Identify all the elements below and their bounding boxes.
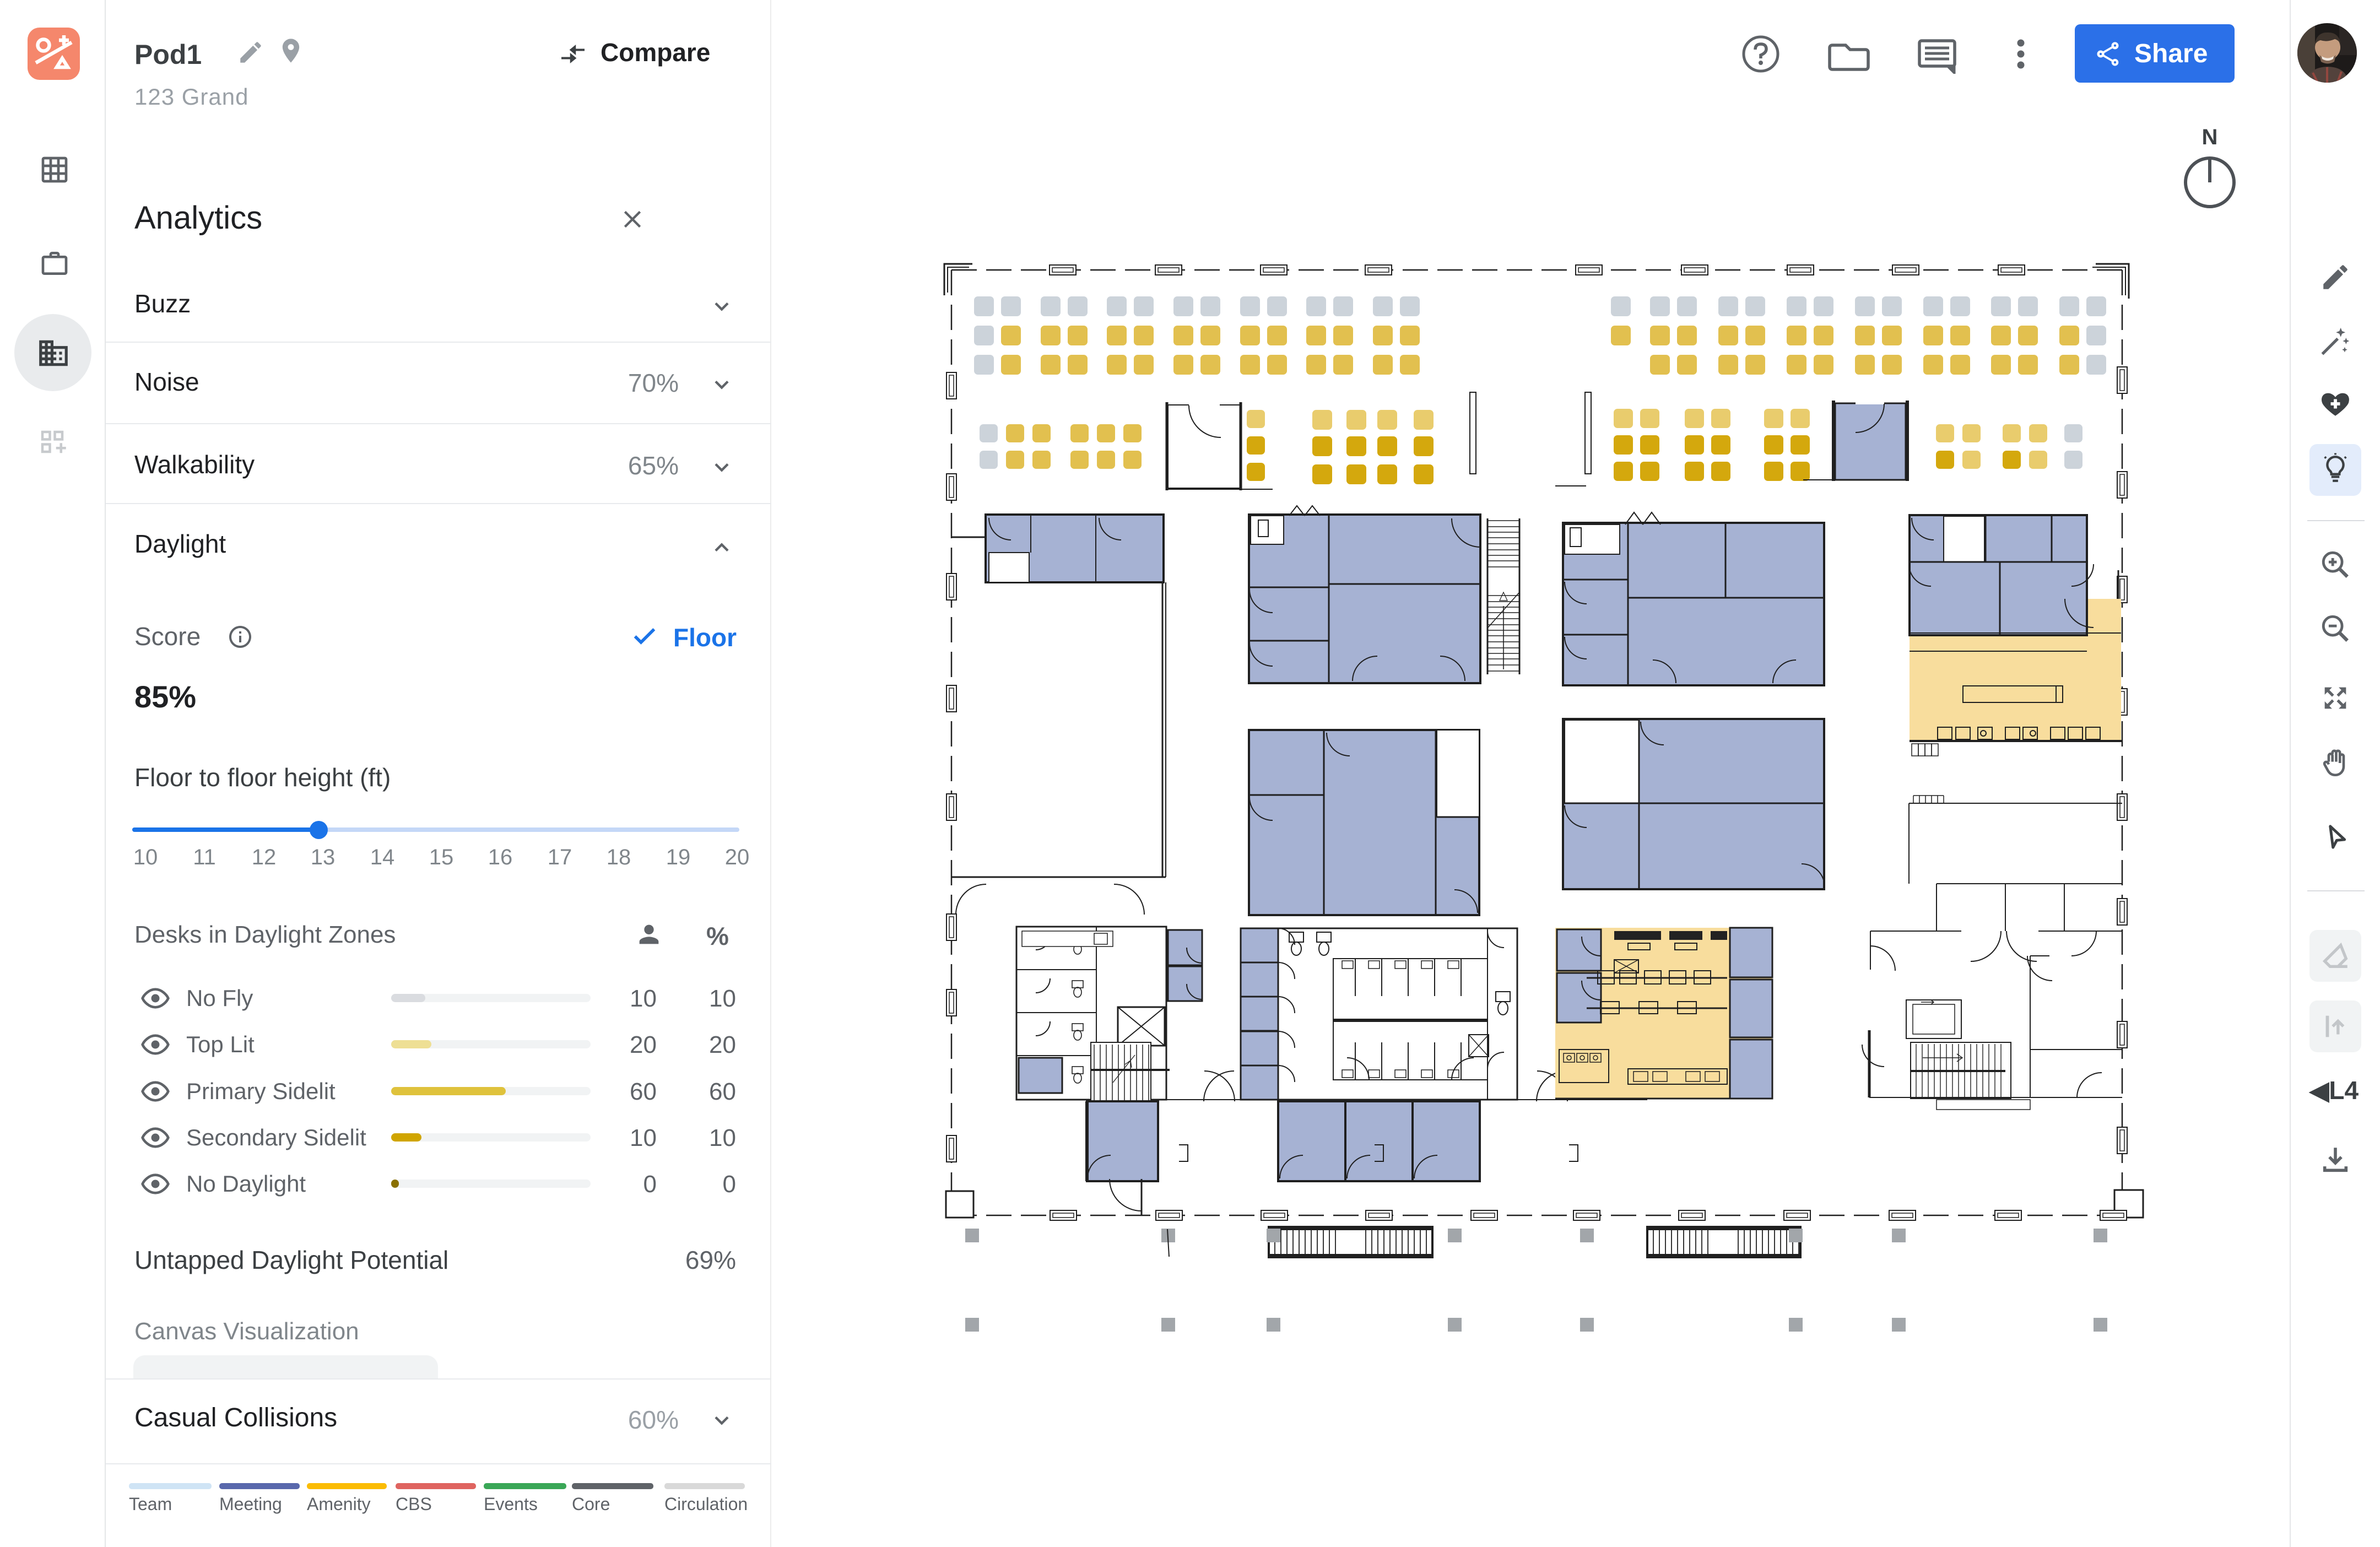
svg-text:N: N: [2202, 125, 2218, 149]
